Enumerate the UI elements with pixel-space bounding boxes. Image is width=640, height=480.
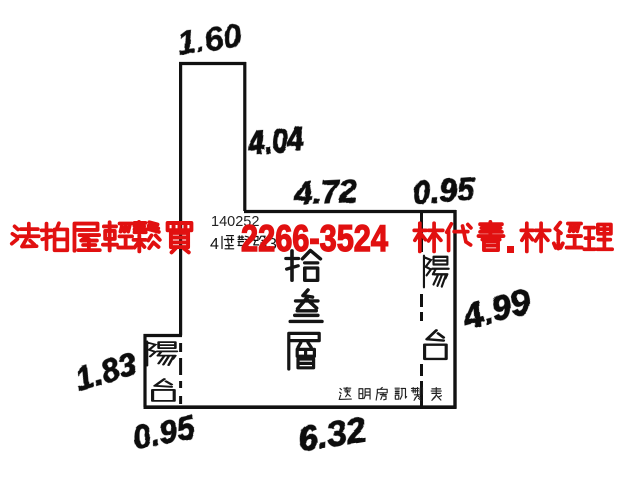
svg-text:4: 4	[210, 236, 219, 253]
svg-text:4.72: 4.72	[293, 173, 358, 212]
svg-text:2266-3524: 2266-3524	[241, 218, 388, 259]
svg-text:1.60: 1.60	[175, 17, 244, 62]
svg-text:4.04: 4.04	[246, 121, 305, 162]
svg-text:0.95: 0.95	[411, 171, 477, 211]
